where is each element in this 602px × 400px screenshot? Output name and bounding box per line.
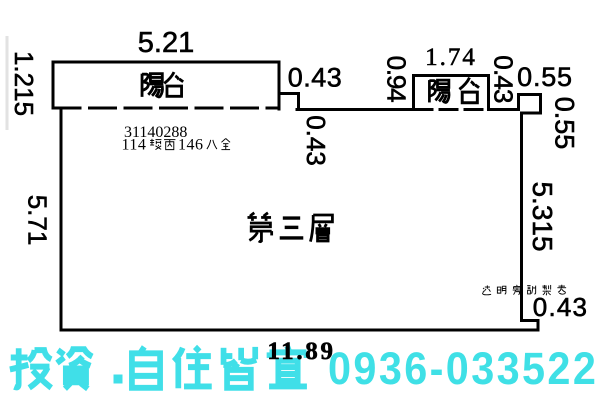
svg-text:146: 146: [178, 137, 204, 154]
svg-text:0.94: 0.94: [382, 56, 412, 103]
svg-text:0.43: 0.43: [489, 55, 519, 103]
svg-text:5.315: 5.315: [527, 181, 558, 251]
svg-text:11.89: 11.89: [267, 338, 335, 365]
svg-text:0.55: 0.55: [550, 97, 580, 150]
svg-text:114: 114: [122, 137, 147, 154]
svg-text:0.43: 0.43: [288, 63, 343, 93]
svg-text:1.215: 1.215: [9, 51, 39, 116]
svg-text:0.43: 0.43: [301, 115, 331, 166]
svg-text:0.43: 0.43: [533, 292, 588, 322]
svg-text:1.74: 1.74: [425, 44, 477, 71]
svg-text:0.55: 0.55: [517, 62, 573, 92]
svg-text:5.71: 5.71: [23, 195, 53, 246]
svg-text:5.21: 5.21: [138, 27, 194, 59]
svg-text:0936-033522: 0936-033522: [328, 344, 598, 394]
